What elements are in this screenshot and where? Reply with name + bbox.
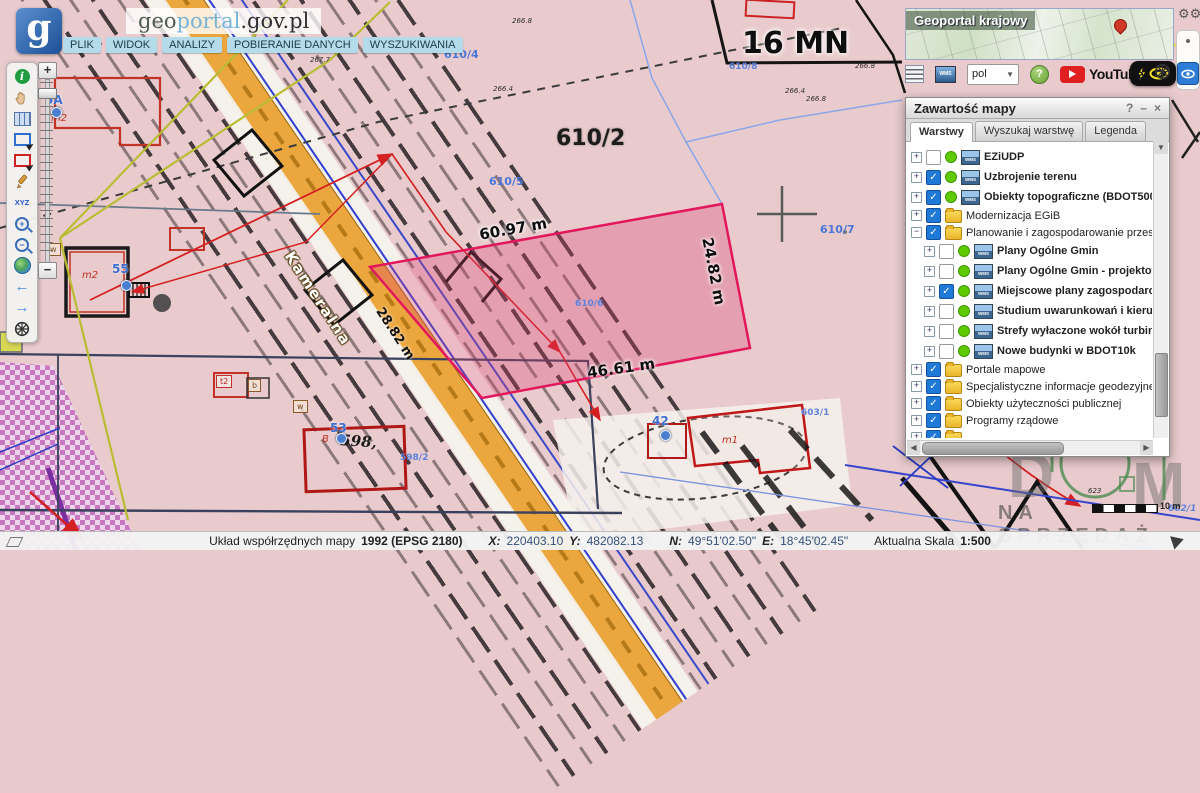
x-label: X: — [489, 534, 501, 548]
folder-icon — [945, 227, 962, 240]
statusbar-arrow-icon[interactable] — [1170, 532, 1186, 549]
green-dot-icon — [958, 305, 970, 317]
layer-label: Studium uwarunkowań i kierunków zag — [997, 305, 1152, 317]
geoportal-logo[interactable]: g — [16, 8, 62, 54]
crs-value: 1992 (EPSG 2180) — [361, 534, 462, 548]
layer-label: Obiekty topograficzne (BDOT500) — [984, 191, 1152, 203]
layer-row[interactable]: +✓Portale mapowe — [909, 361, 1152, 378]
green-dot-icon — [945, 191, 957, 203]
scroll-left-icon[interactable]: ◀ — [907, 441, 920, 455]
layer-row[interactable]: −✓Planowanie i zagospodarowanie przestrz… — [909, 224, 1152, 241]
layer-row[interactable]: +✓ — [909, 429, 1152, 438]
wms-icon: WMS — [961, 170, 980, 185]
location-pin-icon — [1111, 16, 1129, 34]
panel-close-icon[interactable]: × — [1154, 102, 1161, 114]
youtube-play-icon — [1060, 66, 1085, 83]
layer-row[interactable]: +WMSPlany Ogólne Gmin - projektowane — [909, 261, 1152, 281]
folder-icon — [945, 398, 962, 411]
folder-icon — [945, 432, 962, 438]
select-rectangle-icon[interactable] — [12, 130, 32, 150]
expander-icon[interactable]: + — [911, 210, 922, 221]
visibility-eye-button[interactable] — [1177, 62, 1199, 85]
vertical-scrollbar[interactable]: ▲ ▼ — [1153, 141, 1168, 438]
expander-icon[interactable]: + — [911, 364, 922, 375]
layer-checkbox[interactable]: ✓ — [926, 170, 941, 185]
youtube-button[interactable]: YouTube — [1060, 66, 1143, 83]
title-suffix: .gov.pl — [240, 9, 309, 33]
site-title: geoportal.gov.pl — [126, 8, 321, 34]
expander-icon[interactable]: + — [924, 346, 935, 357]
wms-service-icon[interactable]: WMS — [935, 66, 956, 83]
wms-icon: WMS — [974, 244, 993, 259]
layer-label: Nowe budynki w BDOT10k — [997, 345, 1136, 357]
expander-icon[interactable]: + — [911, 415, 922, 426]
clear-selection-icon[interactable] — [12, 151, 32, 171]
folder-icon — [945, 364, 962, 377]
x-value: 220403.10 — [507, 534, 564, 548]
layer-label: Specjalistyczne informacje geodezyjne — [966, 381, 1152, 393]
layer-checkbox[interactable]: ✓ — [926, 430, 941, 438]
panel-help-icon[interactable]: ? — [1126, 102, 1133, 114]
main-menu: PLIK WIDOK ANALIZY POBIERANIE DANYCH WYS… — [63, 37, 463, 53]
full-extent-globe-icon[interactable] — [12, 256, 32, 276]
layer-row[interactable]: +✓Programy rządowe — [909, 412, 1152, 429]
quick-access-bar: WMS pol ▼ ? YouTube — [905, 63, 1171, 85]
layer-label: Strefy wyłaczone wokół turbin wiatrow — [997, 325, 1152, 337]
eye-icon — [1181, 69, 1195, 79]
e-label: E: — [762, 534, 774, 548]
n-value: 49°51'02.50" — [688, 534, 756, 548]
chevron-down-icon: ▼ — [1006, 70, 1014, 79]
y-label: Y: — [569, 534, 580, 548]
layer-checkbox[interactable]: ✓ — [926, 379, 941, 394]
menu-wyszukiwania[interactable]: WYSZUKIWANIA — [363, 37, 463, 53]
expander-icon[interactable]: + — [911, 381, 922, 392]
expander-icon[interactable]: − — [911, 227, 922, 238]
zoom-slider-plus-button[interactable]: + — [38, 62, 57, 79]
overview-map-title: Geoportal krajowy — [906, 11, 1035, 30]
folder-icon — [945, 415, 962, 428]
panel-minimize-icon[interactable]: – — [1140, 102, 1147, 114]
expander-icon[interactable]: + — [924, 286, 935, 297]
expander-icon[interactable]: + — [911, 152, 922, 163]
xyz-coordinates-icon[interactable]: XYZ — [12, 193, 32, 213]
green-dot-icon — [958, 265, 970, 277]
menu-widok[interactable]: WIDOK — [106, 37, 157, 53]
horizontal-scroll-thumb[interactable] — [922, 442, 1064, 455]
layer-checkbox[interactable]: ✓ — [926, 208, 941, 223]
layer-row[interactable]: +✓WMSUzbrojenie terenu — [909, 167, 1152, 187]
zoom-slider-thumb[interactable] — [38, 88, 57, 99]
layer-checkbox[interactable] — [926, 150, 941, 165]
expander-icon[interactable]: + — [924, 266, 935, 277]
layer-checkbox[interactable] — [939, 244, 954, 259]
wms-icon: WMS — [974, 284, 993, 299]
green-dot-icon — [945, 151, 957, 163]
layer-label: Uzbrojenie terenu — [984, 171, 1077, 183]
next-view-icon[interactable]: → — [12, 298, 32, 318]
scale-value: 1:500 — [960, 534, 991, 548]
menu-pobieranie-danych[interactable]: POBIERANIE DANYCH — [227, 37, 358, 53]
layer-row[interactable]: +✓WMSObiekty topograficzne (BDOT500) — [909, 187, 1152, 207]
layer-checkbox[interactable]: ✓ — [926, 413, 941, 428]
logo-letter: g — [26, 10, 51, 46]
green-dot-icon — [958, 285, 970, 297]
language-value: pol — [972, 68, 987, 80]
tab-legenda[interactable]: Legenda — [1085, 121, 1146, 141]
layer-checkbox[interactable] — [939, 304, 954, 319]
youtube-label: YouTube — [1089, 66, 1143, 82]
layer-row[interactable]: +WMSStudium uwarunkowań i kierunków zag — [909, 301, 1152, 321]
info-icon[interactable]: i — [12, 67, 32, 87]
layers-panel-tabs: Warstwy Wyszukaj warstwę Legenda — [906, 119, 1169, 142]
title-geo: geo — [138, 9, 177, 33]
layer-row[interactable]: +WMSNowe budynki w BDOT10k — [909, 341, 1152, 361]
zoom-in-icon[interactable]: + — [12, 214, 32, 234]
layer-label: Plany Ogólne Gmin — [997, 245, 1098, 257]
expander-icon[interactable]: + — [911, 192, 922, 203]
map-toolbar: i XYZ + − ← → — [6, 62, 38, 343]
wms-icon: WMS — [974, 344, 993, 359]
scroll-down-icon[interactable]: ▼ — [1154, 141, 1168, 154]
layer-row[interactable]: +WMSEZiUDP — [909, 147, 1152, 167]
layer-row[interactable]: +✓Specjalistyczne informacje geodezyjne — [909, 378, 1152, 395]
expander-icon[interactable]: + — [924, 246, 935, 257]
vertical-scroll-thumb[interactable] — [1155, 353, 1168, 417]
folder-icon — [945, 381, 962, 394]
layer-row[interactable]: +✓WMSMiejscowe plany zagospodarowania pr… — [909, 281, 1152, 301]
layer-row[interactable]: +✓Modernizacja EGiB — [909, 207, 1152, 224]
layers-panel-titlebar[interactable]: Zawartość mapy ? – × — [906, 98, 1169, 119]
tools-wheel-icon[interactable] — [12, 319, 32, 339]
help-button[interactable]: ? — [1030, 65, 1049, 84]
expander-icon[interactable]: + — [924, 306, 935, 317]
layer-checkbox[interactable]: ✓ — [926, 190, 941, 205]
layer-checkbox[interactable]: ✓ — [926, 396, 941, 411]
green-dot-icon — [958, 345, 970, 357]
attribute-table-icon[interactable] — [12, 109, 32, 129]
layer-label: Programy rządowe — [966, 415, 1058, 427]
wms-icon: WMS — [974, 264, 993, 279]
layer-row[interactable]: +WMSStrefy wyłaczone wokół turbin wiatro… — [909, 321, 1152, 341]
tab-wyszukaj-warstwe[interactable]: Wyszukaj warstwę — [975, 121, 1083, 141]
layer-checkbox[interactable]: ✓ — [926, 225, 941, 240]
polygon-tool-icon[interactable] — [6, 537, 24, 547]
tab-warstwy[interactable]: Warstwy — [910, 122, 973, 142]
green-dot-icon — [945, 171, 957, 183]
layer-label: Obiekty użyteczności publicznej — [966, 398, 1121, 410]
n-label: N: — [669, 534, 682, 548]
layer-label: Miejscowe plany zagospodarowania prz — [997, 285, 1152, 297]
zoom-slider-ticks — [40, 82, 53, 258]
menu-plik[interactable]: PLIK — [63, 37, 101, 53]
expander-icon[interactable]: + — [911, 172, 922, 183]
menu-analizy[interactable]: ANALIZY — [162, 37, 222, 53]
layer-checkbox[interactable] — [939, 324, 954, 339]
settings-gears-icon[interactable]: ⚙⚙ — [1178, 6, 1200, 22]
layer-checkbox[interactable] — [939, 264, 954, 279]
overview-map[interactable]: Geoportal krajowy — [905, 8, 1174, 60]
layer-row[interactable]: +✓Obiekty użyteczności publicznej — [909, 395, 1152, 412]
wms-icon: WMS — [974, 324, 993, 339]
legend-list-icon[interactable] — [905, 65, 924, 83]
layer-checkbox[interactable]: ✓ — [926, 362, 941, 377]
language-select[interactable]: pol ▼ — [967, 64, 1019, 85]
layer-label: Planowanie i zagospodarowanie przestrzen… — [966, 227, 1152, 239]
layer-checkbox[interactable]: ✓ — [939, 284, 954, 299]
layer-row[interactable]: +WMSPlany Ogólne Gmin — [909, 241, 1152, 261]
layer-tree: +WMSEZiUDP+✓WMSUzbrojenie terenu+✓WMSObi… — [907, 141, 1152, 438]
pan-hand-icon[interactable] — [12, 88, 32, 108]
wms-icon: WMS — [974, 304, 993, 319]
zoom-out-icon[interactable]: − — [12, 235, 32, 255]
layers-panel: Zawartość mapy ? – × Warstwy Wyszukaj wa… — [905, 97, 1170, 457]
strip-dot-icon — [1186, 39, 1190, 43]
green-dot-icon — [958, 325, 970, 337]
e-value: 18°45'02.45" — [780, 534, 848, 548]
horizontal-scrollbar[interactable]: ◀ ▶ — [907, 440, 1153, 455]
expander-icon[interactable]: + — [911, 432, 922, 438]
title-portal: portal — [177, 9, 241, 33]
wms-icon: WMS — [961, 190, 980, 205]
status-bar: Układ współrzędnych mapy 1992 (EPSG 2180… — [0, 531, 1200, 550]
expander-icon[interactable]: + — [924, 326, 935, 337]
layers-panel-title: Zawartość mapy — [914, 101, 1016, 116]
scale-bar — [1092, 504, 1158, 513]
zoom-slider-minus-button[interactable]: − — [38, 262, 57, 279]
layer-label: Portale mapowe — [966, 364, 1046, 376]
crs-label: Układ współrzędnych mapy — [209, 534, 355, 548]
scroll-right-icon[interactable]: ▶ — [1140, 441, 1153, 455]
layer-label: EZiUDP — [984, 151, 1024, 163]
expander-icon[interactable]: + — [911, 398, 922, 409]
scale-bar-label: 10 m — [1160, 501, 1181, 511]
wms-icon: WMS — [961, 150, 980, 165]
y-value: 482082.13 — [587, 534, 644, 548]
layer-label: Plany Ogólne Gmin - projektowane — [997, 265, 1152, 277]
wheel-icon[interactable] — [1154, 63, 1171, 85]
folder-icon — [945, 210, 962, 223]
measure-pencil-icon[interactable] — [12, 172, 32, 192]
green-dot-icon — [958, 245, 970, 257]
previous-view-icon[interactable]: ← — [12, 277, 32, 297]
scale-label: Aktualna Skala — [874, 534, 954, 548]
layer-checkbox[interactable] — [939, 344, 954, 359]
layer-label: Modernizacja EGiB — [966, 210, 1060, 222]
